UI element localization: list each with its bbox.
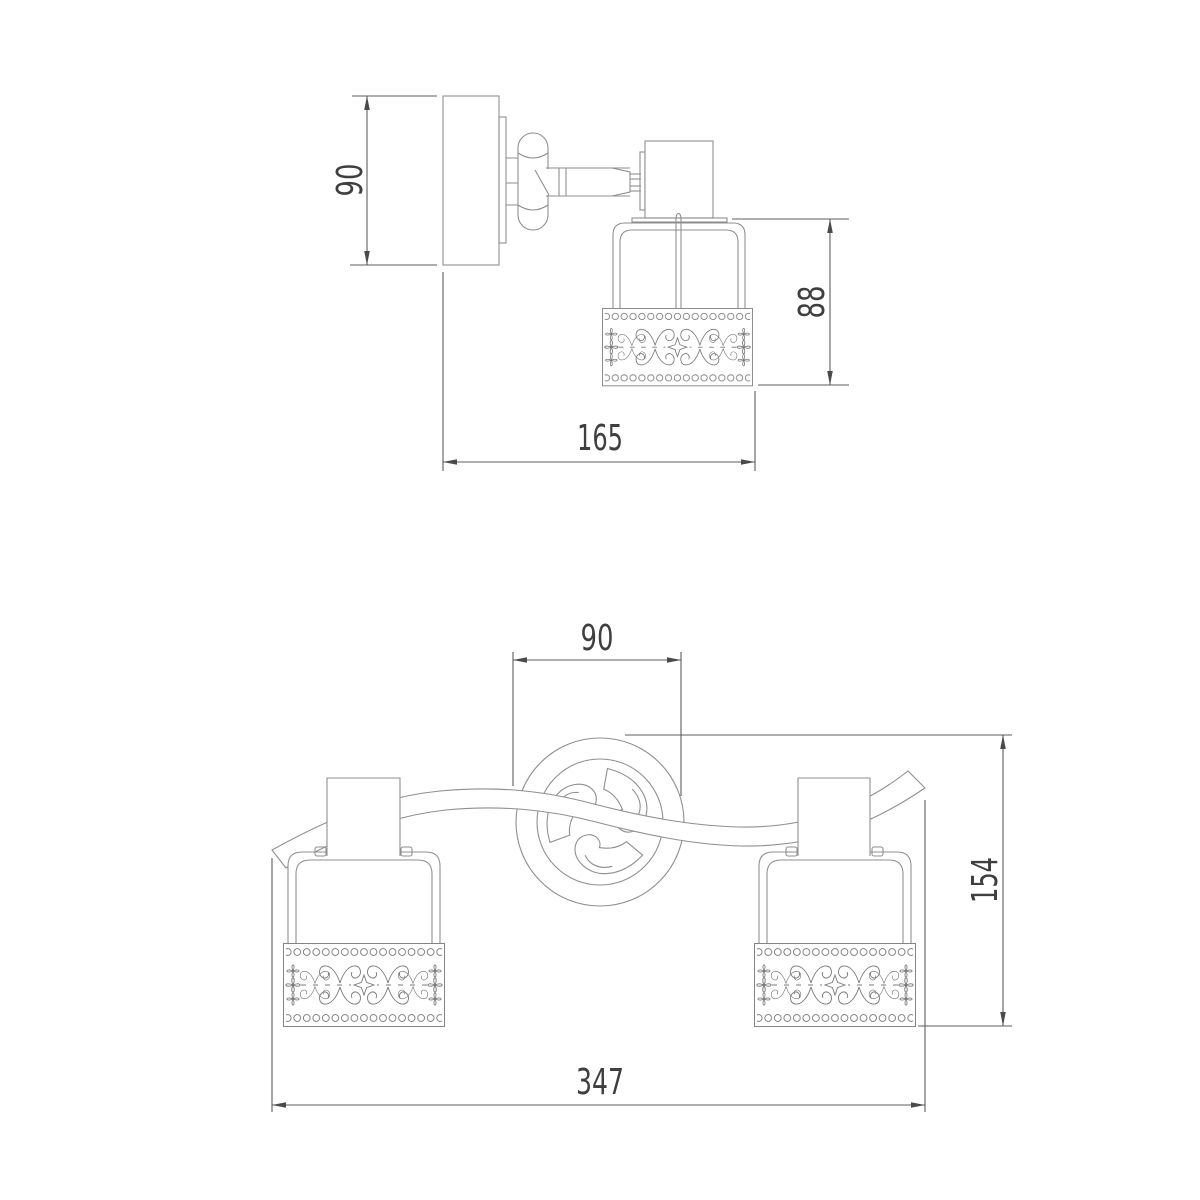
side-view: 90 88 165 [330, 96, 849, 471]
right-stem [798, 778, 870, 856]
dim-overall-depth-label: 165 [577, 418, 623, 459]
ornament-band-side [602, 308, 752, 385]
dim-canopy-diameter-label: 90 [581, 618, 614, 659]
left-spot [284, 778, 445, 1027]
dim-shade-height-label: 88 [792, 286, 833, 319]
lamp-shade-side [602, 214, 752, 386]
dim-overall-height-label: 154 [965, 857, 1006, 903]
wall-backplate [443, 96, 506, 265]
lamp-head [632, 141, 727, 222]
ornament-band-left [284, 944, 445, 1027]
dim-overall-width-label: 347 [576, 1062, 624, 1103]
left-stem [327, 778, 400, 856]
socket-rod [676, 214, 681, 311]
dim-canopy-diameter: 90 [513, 618, 681, 660]
left-shade-shell [288, 852, 440, 946]
dim-overall-height: 154 [918, 735, 1012, 1026]
dim-backplate-height: 90 [330, 96, 437, 265]
right-spot [755, 778, 916, 1027]
dim-backplate-height-label: 90 [330, 164, 371, 197]
swivel-arm [535, 152, 645, 210]
ornament-band-right [755, 944, 916, 1027]
dim-canopy-extensions [513, 652, 681, 796]
lamp-dimension-drawing: 90 88 165 [0, 0, 1200, 1200]
right-shade-shell [759, 852, 911, 946]
front-view: 90 154 347 [272, 618, 1012, 1112]
technical-drawing-page: 90 88 165 [0, 0, 1200, 1200]
